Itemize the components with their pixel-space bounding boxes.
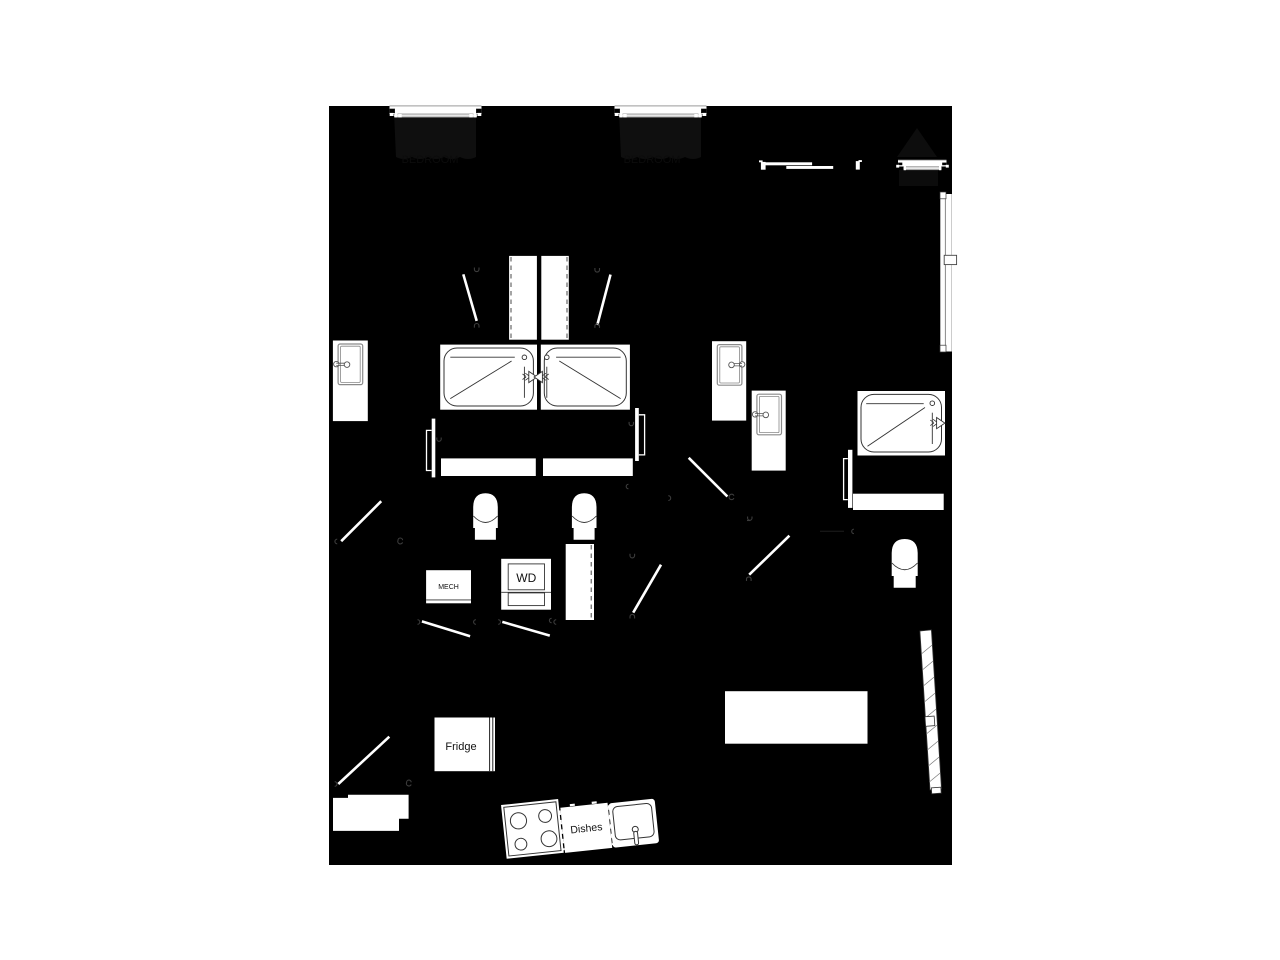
svg-text:Fridge: Fridge	[445, 741, 476, 753]
svg-text:WD: WD	[516, 571, 536, 585]
svg-text:BEDROOM: BEDROOM	[402, 154, 459, 166]
svg-text:BEDROOM: BEDROOM	[624, 154, 681, 166]
svg-text:MECH: MECH	[438, 584, 459, 591]
